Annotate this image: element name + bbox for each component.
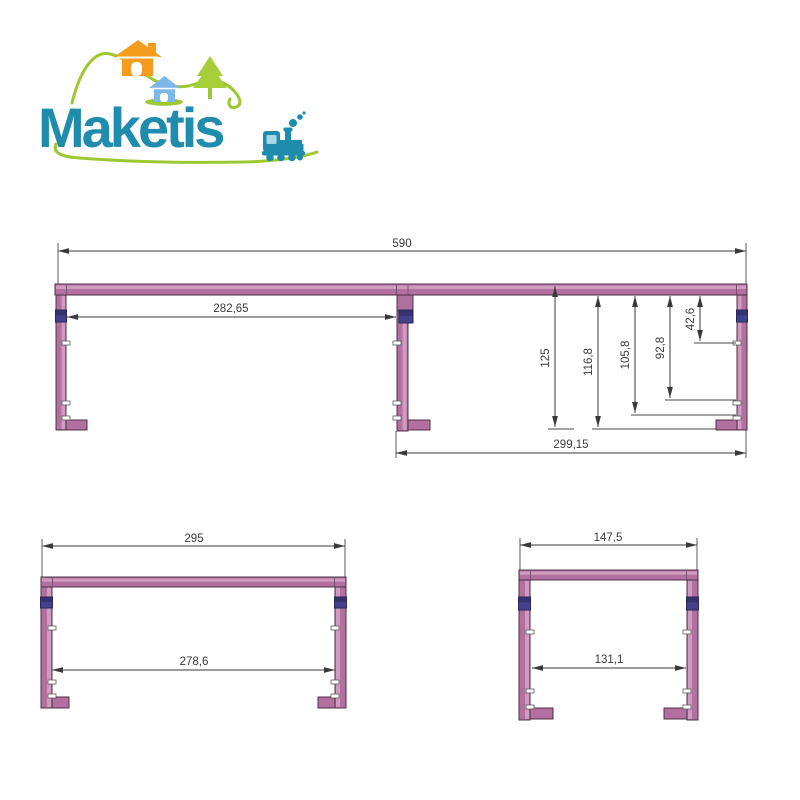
page: Maketis [0,0,800,800]
dimension-front-total-width: 295 [42,533,345,577]
svg-text:147,5: 147,5 [594,532,623,544]
dimension-height-42-6: 42,6 [685,296,736,343]
front-rail [41,577,346,587]
dimension-side-inner-width: 131,1 [532,654,686,668]
front-frame-view: 295 278,6 [41,533,347,708]
svg-text:116,8: 116,8 [583,348,595,376]
svg-text:278,6: 278,6 [180,656,209,668]
front-right-leg [318,587,347,708]
train-icon [262,111,306,161]
svg-text:299,15: 299,15 [553,439,588,451]
top-frame-view: 590 282,65 299,15 125 116,8 105,8 [55,238,748,458]
dimension-inner-left-width: 282,65 [67,303,396,317]
left-leg [56,295,88,430]
technical-drawing-sheet: Maketis [0,0,800,800]
svg-text:125: 125 [540,348,552,367]
top-rail [55,284,747,295]
svg-text:131,1: 131,1 [595,654,624,666]
dimension-front-inner-width: 278,6 [52,656,335,670]
brand-wordmark: Maketis [38,96,223,159]
dimension-side-total-width: 147,5 [520,532,697,570]
svg-text:295: 295 [184,533,203,545]
svg-text:42,6: 42,6 [685,308,697,330]
side-left-leg [519,580,554,720]
side-rail [519,570,698,580]
dimension-height-125: 125 [540,286,574,429]
dimension-total-width-590: 590 [58,238,746,284]
svg-text:590: 590 [392,238,411,250]
orange-house-icon [114,40,162,76]
middle-leg [393,295,430,431]
right-leg [716,295,748,430]
front-left-leg [41,587,70,708]
side-right-leg [664,580,699,720]
svg-text:105,8: 105,8 [620,341,632,370]
pine-tree-icon [193,56,227,99]
maketis-logo: Maketis [38,40,317,162]
dimension-height-105-8: 105,8 [620,296,736,415]
side-frame-view: 147,5 131,1 [519,532,699,720]
dimension-inner-right-width: 299,15 [396,430,746,458]
svg-text:282,65: 282,65 [213,303,248,315]
svg-text:92,8: 92,8 [655,337,667,359]
